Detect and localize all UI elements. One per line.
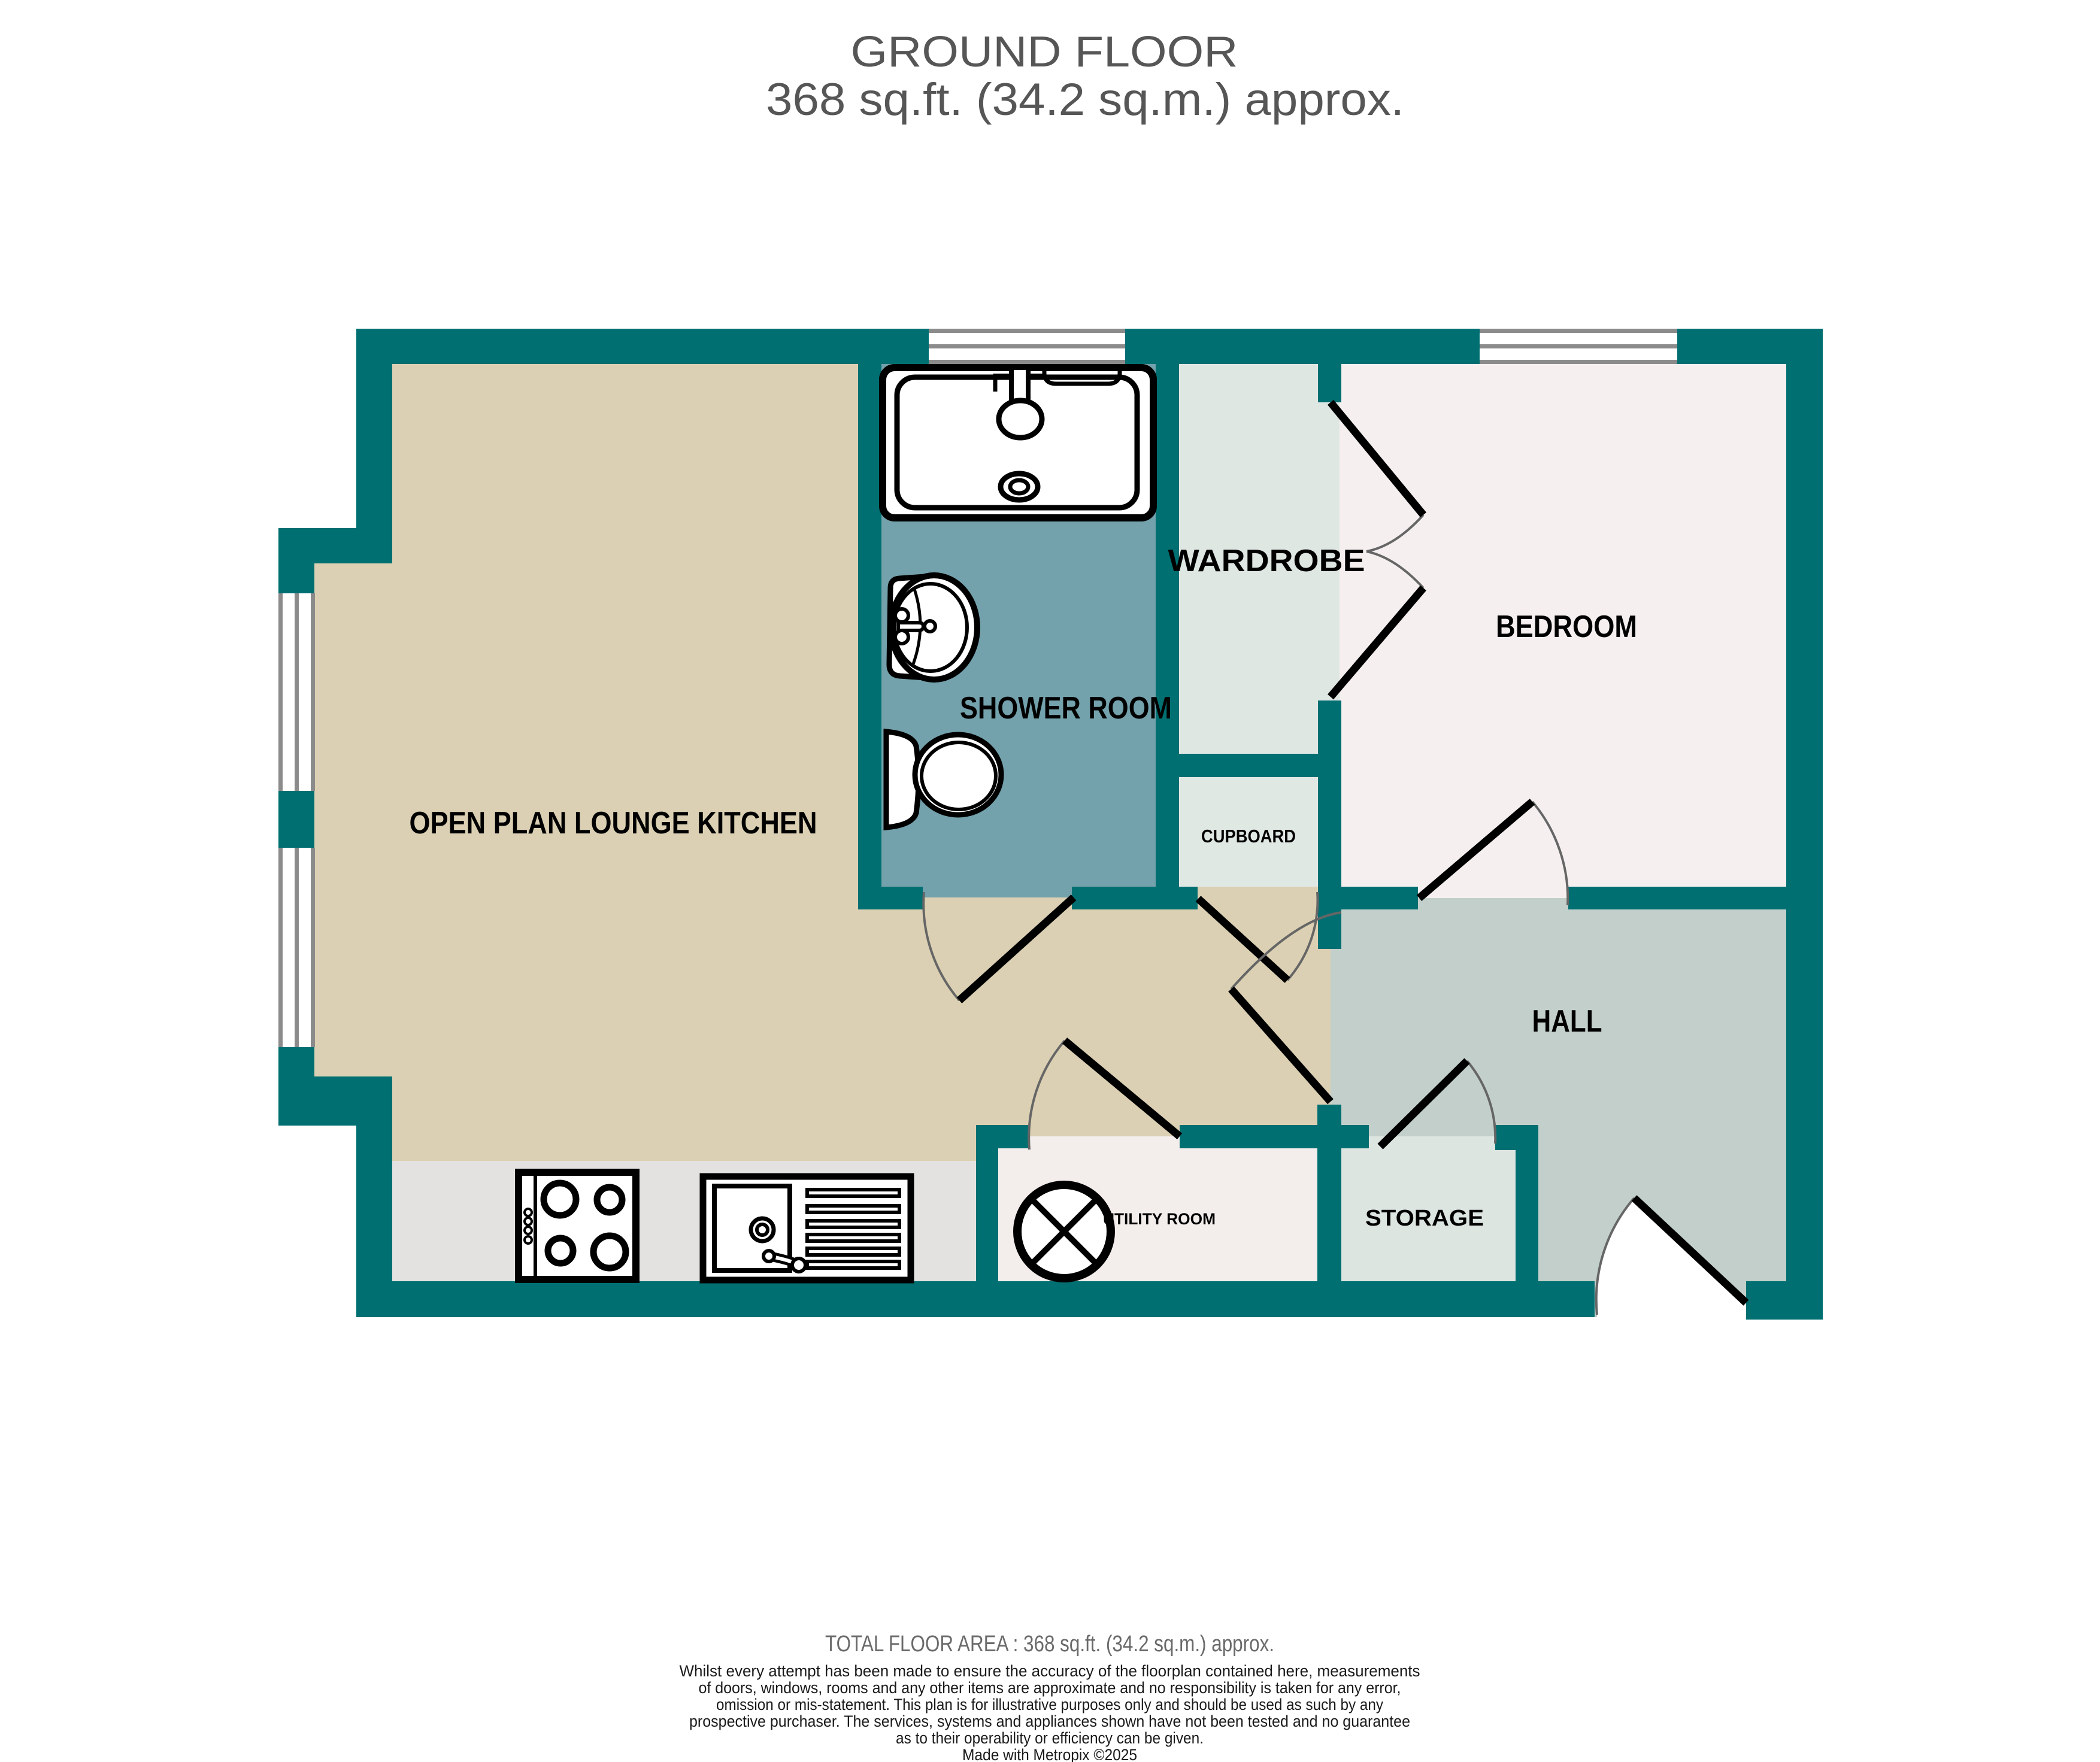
svg-text:GROUND FLOOR: GROUND FLOOR [851,28,1238,76]
svg-text:WARDROBE: WARDROBE [1168,544,1365,578]
svg-text:prospective purchaser. The ser: prospective purchaser. The services, sys… [689,1712,1410,1730]
svg-text:Made with Metropix ©2025: Made with Metropix ©2025 [962,1746,1137,1762]
svg-text:of doors, windows, rooms and a: of doors, windows, rooms and any other i… [699,1679,1401,1697]
svg-text:BEDROOM: BEDROOM [1496,609,1637,644]
svg-text:UTILITY ROOM: UTILITY ROOM [1103,1210,1216,1228]
svg-text:SHOWER ROOM: SHOWER ROOM [960,691,1172,726]
svg-text:omission or mis-statement. Thi: omission or mis-statement. This plan is … [716,1696,1383,1714]
svg-text:Whilst every attempt has been: Whilst every attempt has been made to en… [680,1662,1420,1680]
svg-text:HALL: HALL [1532,1004,1602,1039]
svg-text:368 sq.ft. (34.2 sq.m.) approx: 368 sq.ft. (34.2 sq.m.) approx. [766,74,1404,125]
svg-text:OPEN PLAN LOUNGE KITCHEN: OPEN PLAN LOUNGE KITCHEN [410,806,817,841]
svg-text:CUPBOARD: CUPBOARD [1201,826,1296,847]
svg-text:TOTAL FLOOR AREA : 368 sq.ft.: TOTAL FLOOR AREA : 368 sq.ft. (34.2 sq.m… [825,1631,1274,1657]
svg-text:STORAGE: STORAGE [1365,1206,1484,1231]
svg-text:as to their operability or eff: as to their operability or efficiency ca… [896,1729,1204,1747]
